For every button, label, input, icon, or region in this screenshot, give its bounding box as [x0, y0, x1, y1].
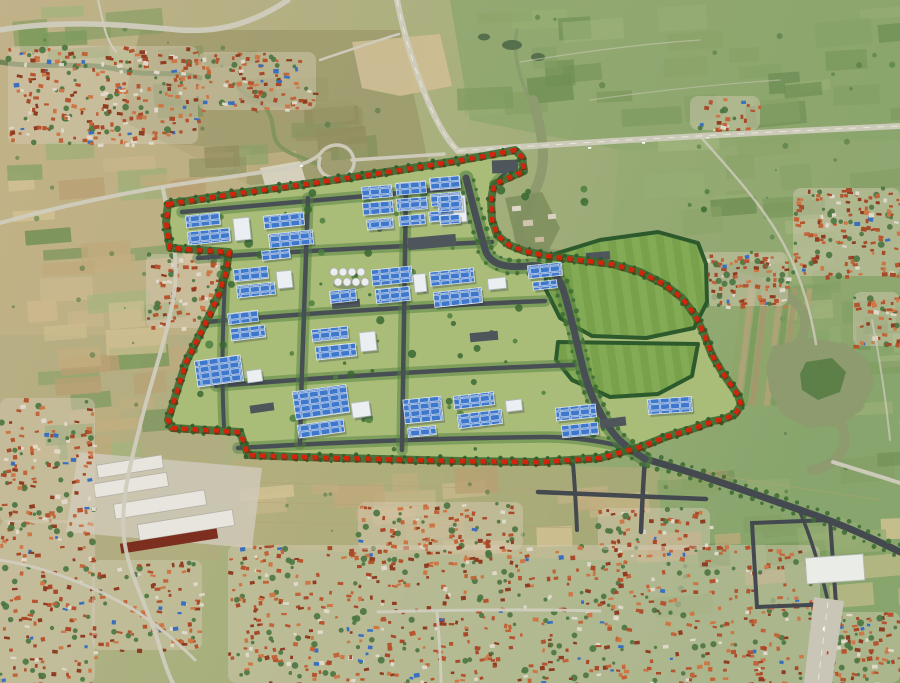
cluster-field-nw	[527, 262, 564, 292]
cluster-silo-shed	[329, 289, 358, 306]
pond	[478, 34, 490, 41]
village-bottom-big	[228, 544, 826, 683]
village-near-highway	[690, 96, 761, 133]
aerial-site-render	[0, 0, 900, 683]
silo-tanks	[330, 268, 369, 290]
village-bottom-tongue-b	[595, 507, 713, 552]
white-warehouse	[805, 554, 865, 584]
village-left-strip	[0, 398, 97, 527]
village-top-left	[5, 45, 201, 148]
cluster-gate-north	[437, 195, 464, 227]
pond	[502, 40, 522, 50]
village-bottom-tongue-a	[356, 502, 523, 552]
village-right-top	[791, 186, 900, 280]
cluster-field-edge	[648, 396, 695, 417]
village-left-mid-bottom	[91, 560, 205, 653]
village-top-mid	[198, 52, 319, 112]
aerial-map-canvas	[0, 0, 900, 683]
village-left-bottom	[0, 520, 98, 683]
